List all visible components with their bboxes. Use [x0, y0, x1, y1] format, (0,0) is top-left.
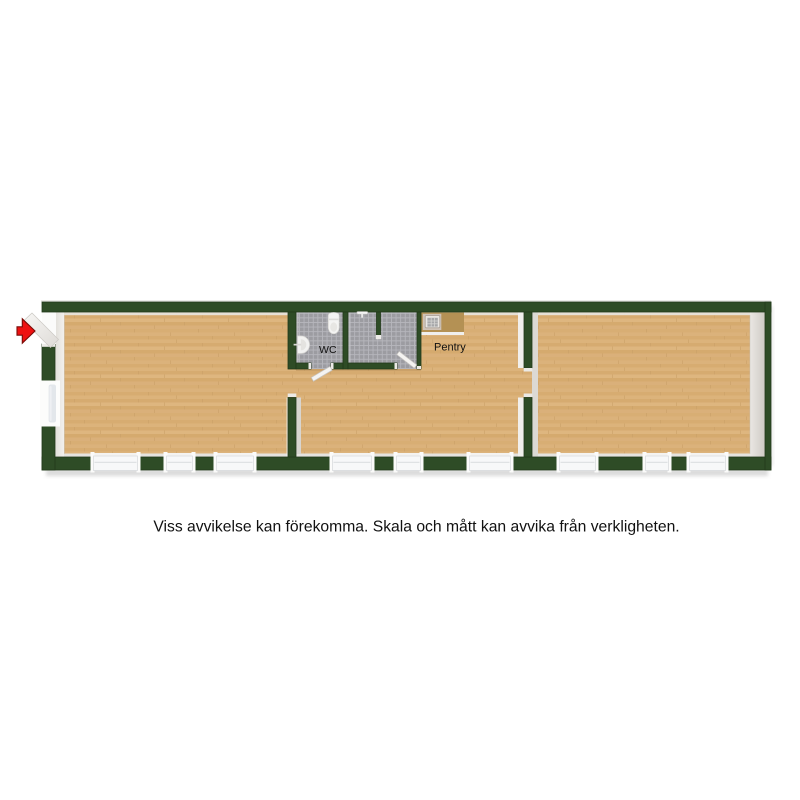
svg-text:WC: WC	[319, 344, 337, 356]
svg-text:Pentry: Pentry	[434, 342, 466, 354]
svg-text:Viss avvikelse kan förekomma.: Viss avvikelse kan förekomma. Skala och …	[153, 518, 679, 536]
